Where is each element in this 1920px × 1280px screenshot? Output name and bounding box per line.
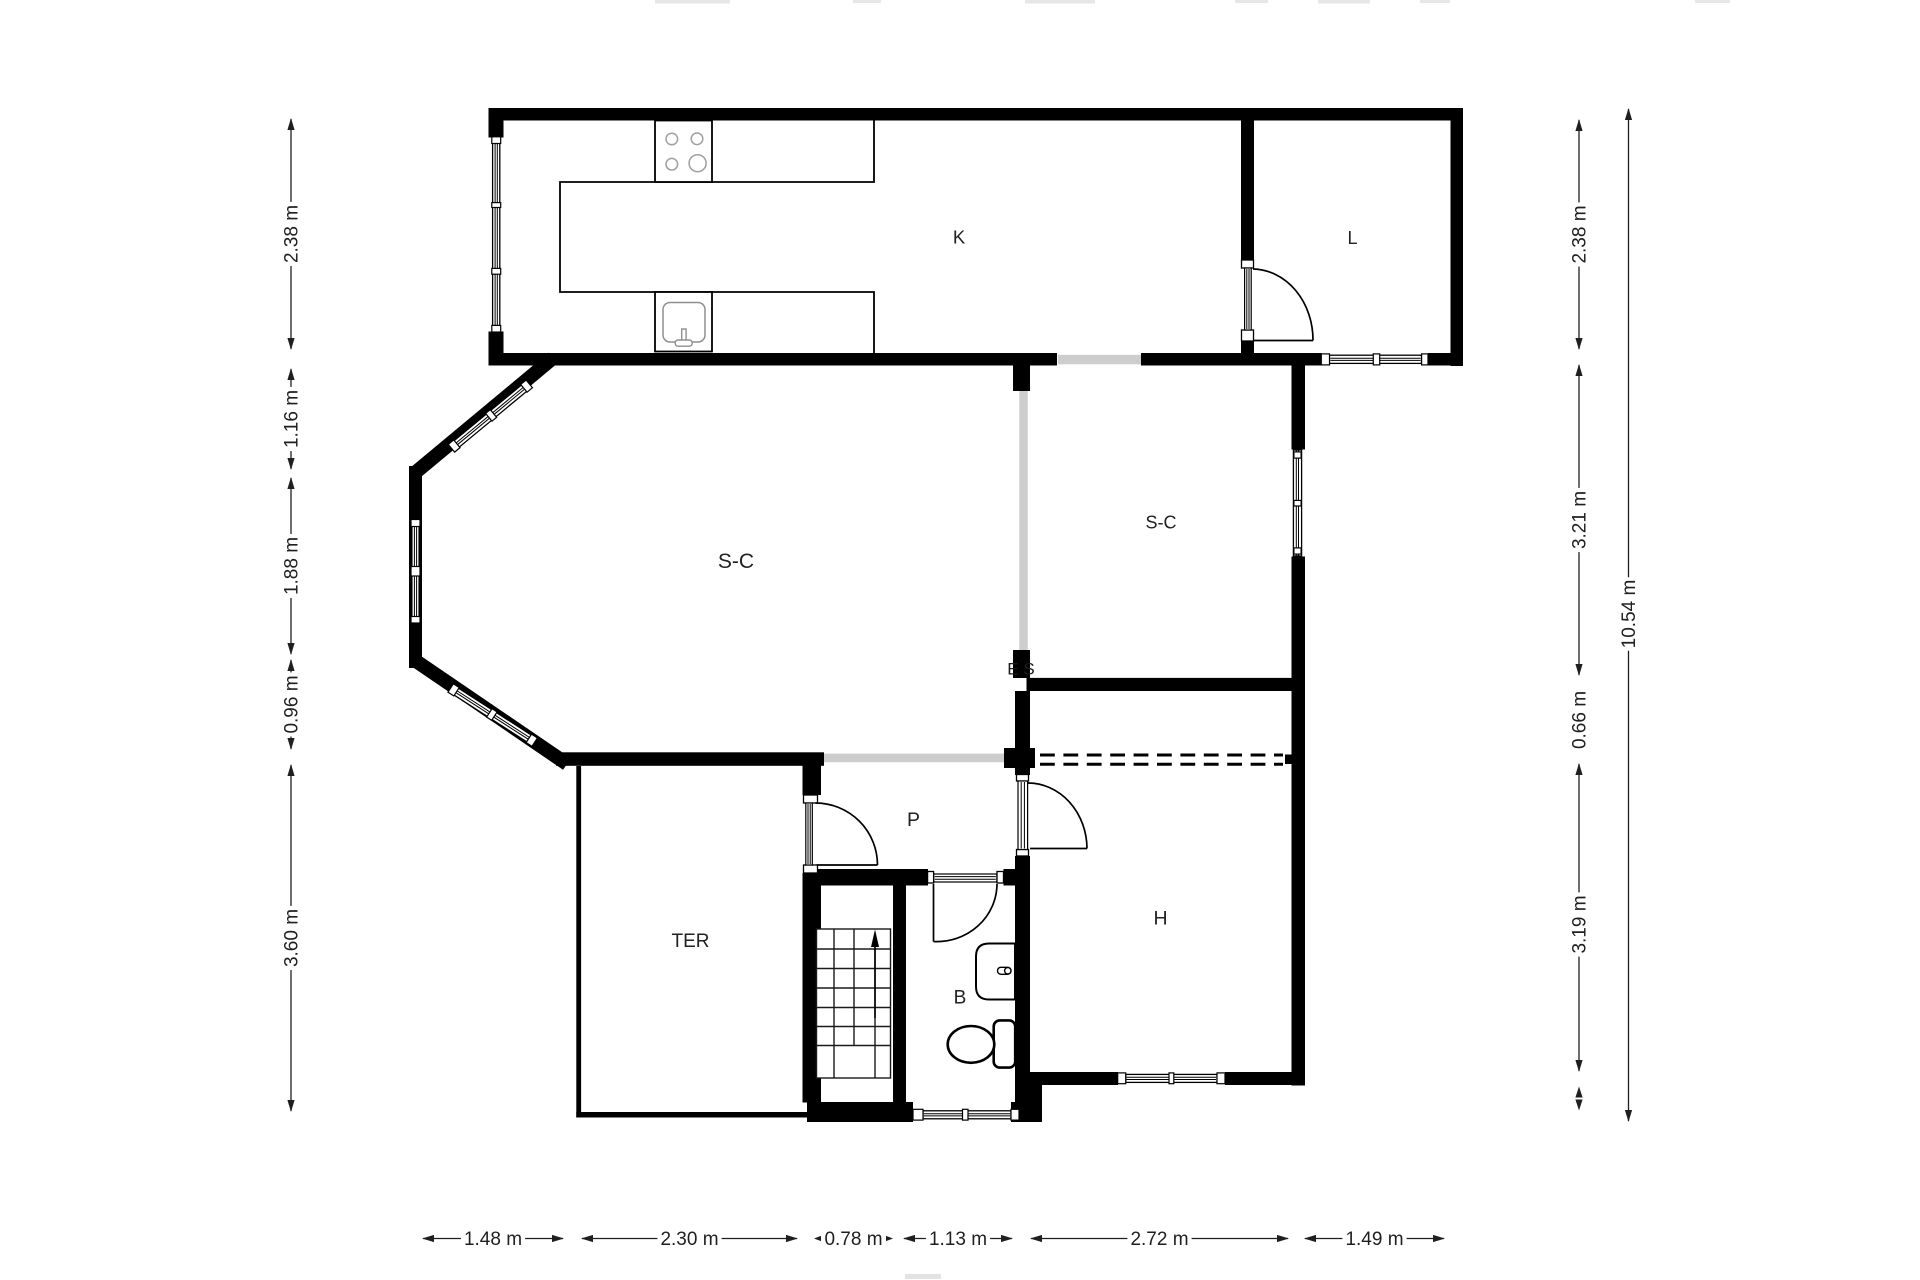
- svg-text:3.21 m: 3.21 m: [1569, 491, 1590, 549]
- svg-text:1.16 m: 1.16 m: [281, 390, 302, 448]
- svg-text:P: P: [907, 809, 920, 831]
- svg-text:2.38 m: 2.38 m: [1569, 205, 1590, 263]
- svg-text:E S: E S: [1007, 660, 1034, 679]
- svg-text:0.66 m: 0.66 m: [1569, 691, 1590, 749]
- svg-text:H: H: [1153, 908, 1167, 930]
- svg-text:S-C: S-C: [1146, 513, 1177, 533]
- svg-text:1.88 m: 1.88 m: [281, 537, 302, 595]
- svg-text:S-C: S-C: [718, 550, 754, 573]
- svg-text:2.30 m: 2.30 m: [660, 1229, 718, 1250]
- svg-text:1.48 m: 1.48 m: [464, 1229, 522, 1250]
- svg-text:0.96 m: 0.96 m: [281, 675, 302, 733]
- svg-text:1.13 m: 1.13 m: [929, 1229, 987, 1250]
- svg-text:2.72 m: 2.72 m: [1130, 1229, 1188, 1250]
- svg-text:3.60 m: 3.60 m: [281, 909, 302, 967]
- svg-text:1.49 m: 1.49 m: [1345, 1229, 1403, 1250]
- svg-text:K: K: [953, 227, 966, 248]
- svg-text:TER: TER: [672, 931, 710, 952]
- svg-text:2.38 m: 2.38 m: [281, 205, 302, 263]
- svg-text:3.19 m: 3.19 m: [1569, 895, 1590, 953]
- svg-text:0.78 m: 0.78 m: [824, 1229, 882, 1250]
- svg-text:10.54 m: 10.54 m: [1619, 580, 1640, 649]
- svg-text:L: L: [1347, 228, 1357, 248]
- svg-text:B: B: [954, 988, 967, 1009]
